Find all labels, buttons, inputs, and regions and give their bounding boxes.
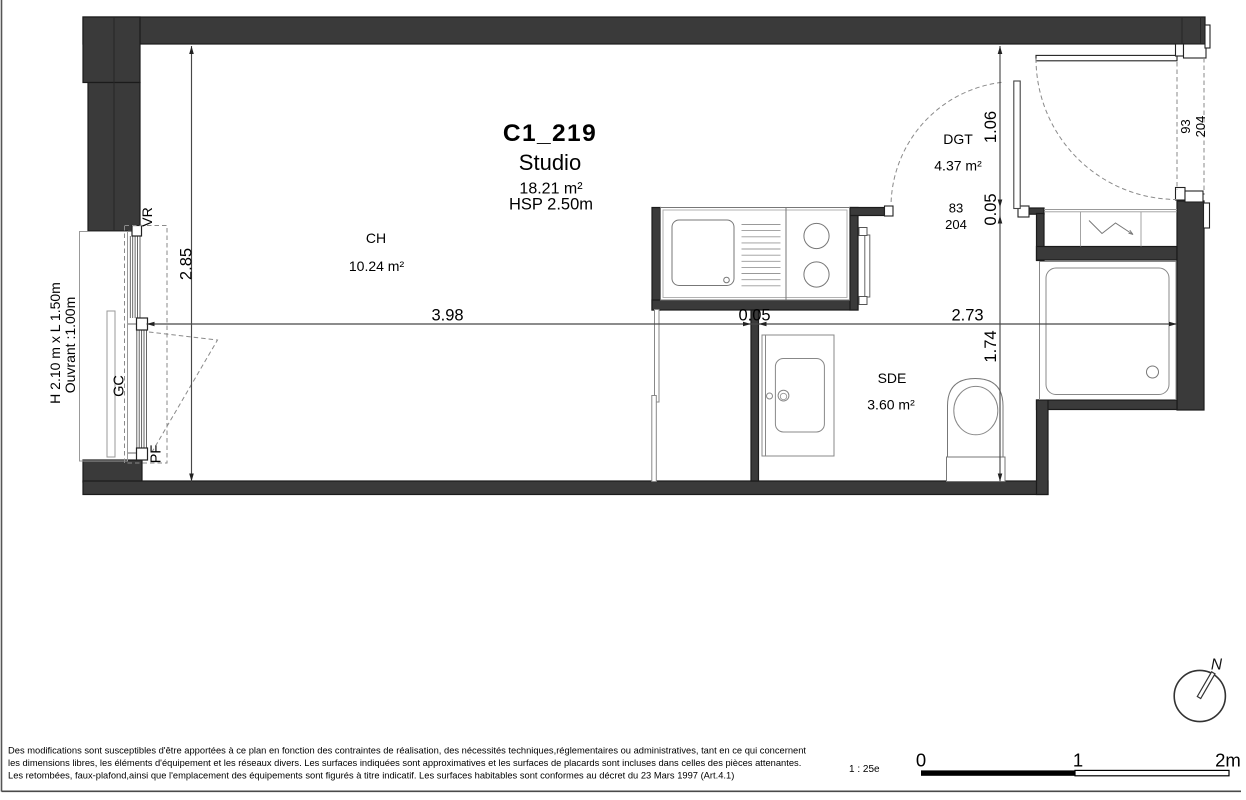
svg-text:Les retombées, faux-plafond,ai: Les retombées, faux-plafond,ainsi que l'…: [8, 770, 734, 780]
svg-text:2m: 2m: [1215, 750, 1241, 771]
svg-text:1.06: 1.06: [982, 111, 1000, 143]
svg-text:Des modifications sont suscept: Des modifications sont susceptibles d'êt…: [8, 745, 806, 755]
svg-text:1.74: 1.74: [982, 330, 1000, 362]
svg-text:93: 93: [1178, 119, 1193, 133]
svg-text:2.85: 2.85: [178, 248, 196, 280]
svg-text:H 2.10 m x L 1.50m: H 2.10 m x L 1.50m: [47, 282, 63, 404]
svg-text:Studio: Studio: [519, 150, 581, 175]
svg-text:204: 204: [945, 217, 967, 232]
svg-text:3.98: 3.98: [431, 306, 463, 324]
svg-text:SDE: SDE: [878, 370, 907, 386]
svg-text:C1_219: C1_219: [503, 120, 597, 147]
svg-text:PF: PF: [149, 445, 165, 464]
svg-text:2.73: 2.73: [951, 306, 983, 324]
svg-text:HSP 2.50m: HSP 2.50m: [509, 196, 593, 214]
svg-text:0.05: 0.05: [982, 193, 1000, 225]
svg-text:10.24 m²: 10.24 m²: [349, 258, 405, 274]
svg-text:GC: GC: [112, 375, 128, 397]
svg-text:83: 83: [949, 201, 963, 216]
svg-text:4.37 m²: 4.37 m²: [934, 158, 982, 174]
svg-text:DGT: DGT: [943, 131, 973, 147]
svg-text:VR: VR: [139, 207, 155, 226]
svg-text:1 : 25e: 1 : 25e: [849, 764, 880, 775]
svg-text:N: N: [1211, 657, 1223, 674]
svg-text:les dimensions libres, les élé: les dimensions libres, les éléments d'éq…: [8, 758, 801, 768]
svg-text:0: 0: [916, 750, 926, 771]
svg-text:CH: CH: [366, 230, 386, 246]
svg-text:Ouvrant :1.00m: Ouvrant :1.00m: [62, 297, 78, 394]
svg-text:204: 204: [1193, 116, 1208, 138]
svg-text:0.05: 0.05: [738, 306, 770, 324]
svg-text:1: 1: [1073, 750, 1083, 771]
svg-text:3.60 m²: 3.60 m²: [867, 397, 915, 413]
